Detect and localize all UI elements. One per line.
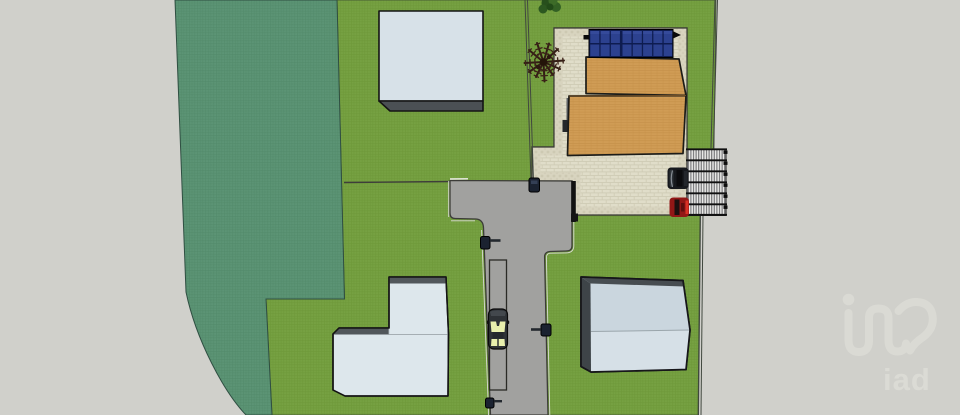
svg-text:iad: iad — [883, 362, 931, 397]
